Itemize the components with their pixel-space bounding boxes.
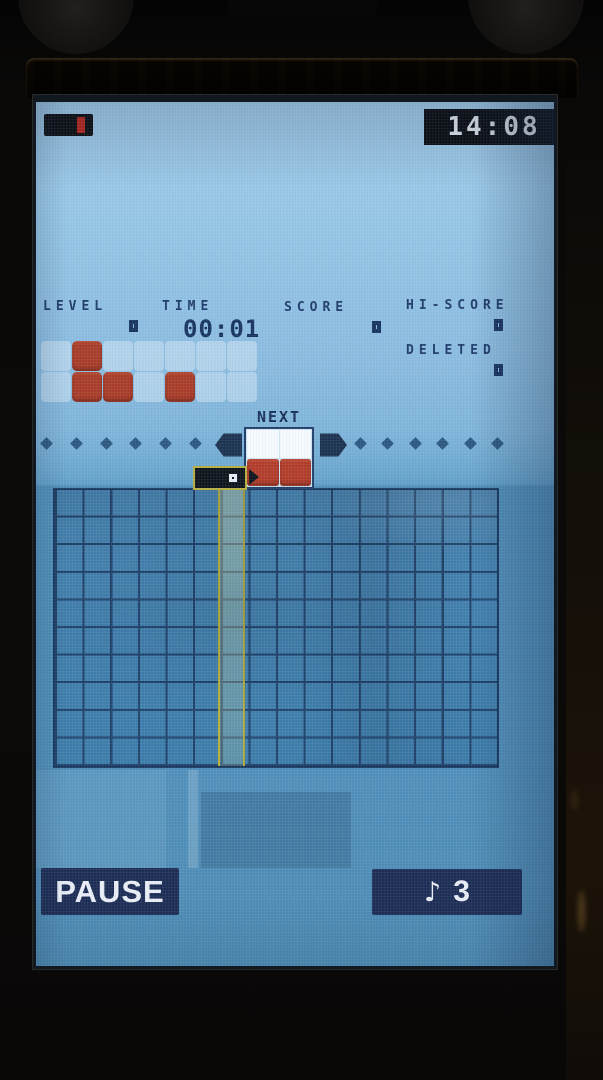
music-button[interactable]: ♪ 3 [372,869,522,915]
next-block-empty [247,430,279,458]
pattern-block-red [72,372,102,402]
device-top-bump-left [18,0,134,54]
hud-time-label: TIME [162,299,213,314]
timeline-arrow-right-icon [320,432,347,458]
photo-frame: 14:08 LEVEL TIME SCORE HI-SCORE DELETED … [0,0,603,1080]
hud-deleted-value: 0 [494,364,503,376]
piece-block-solid [195,468,220,488]
pattern-block-empty [134,372,164,402]
next-block-red [280,459,312,487]
timeline-diamond-icon [491,437,504,450]
hud-score-value: 0 [372,321,381,333]
pattern-block-empty [196,372,226,402]
pattern-block-empty [41,372,71,402]
column-highlight [218,490,245,766]
device-top-notch [228,0,378,16]
pattern-block-red [103,372,133,402]
music-level-value: 3 [453,875,470,909]
timeline-left [42,437,200,449]
field-glare [55,490,497,766]
hud-level-value: 0 [129,320,138,332]
hud-score-label: SCORE [284,300,348,315]
device-side-sheen [566,160,603,1080]
pattern-block-empty [227,341,257,371]
pattern-block-empty [196,341,226,371]
pattern-block-empty [165,341,195,371]
falling-piece [193,466,247,490]
timeline-diamond-icon [354,437,367,450]
timeline-diamond-icon [100,437,113,450]
battery-low-icon [44,114,93,136]
special-block-icon [229,474,237,482]
bezel-glint [578,890,585,932]
timeline-diamond-icon [70,437,83,450]
screen-glare [201,792,351,868]
level-pattern [41,341,257,402]
timeline-diamond-icon [189,437,202,450]
device-bezel [26,58,578,98]
screen-glare [36,770,166,868]
hud-time-value: 00:01 [183,315,260,343]
hud-level-label: LEVEL [43,299,107,314]
timeline-diamond-icon [382,437,395,450]
screen-glare [188,770,198,868]
timeline-right [356,437,502,449]
pattern-block-empty [103,341,133,371]
bezel-glint [572,790,577,810]
timeline-diamond-icon [436,437,449,450]
music-note-icon: ♪ [424,877,441,908]
device-top-bump-right [468,0,584,54]
pattern-block-red [165,372,195,402]
pause-button[interactable]: PAUSE [41,868,179,915]
status-clock: 14:08 [424,109,557,145]
hud-hiscore-value: 0 [494,319,503,331]
battery-level-bar [77,117,85,133]
timeline-diamond-icon [159,437,172,450]
next-block-empty [280,430,312,458]
pattern-block-empty [227,372,257,402]
timeline-diamond-icon [40,437,53,450]
timeline-diamond-icon [409,437,422,450]
pattern-block-empty [134,341,164,371]
pattern-block-red [72,341,102,371]
timeline-diamond-icon [130,437,143,450]
hud-deleted-label: DELETED [406,343,496,358]
pattern-block-empty [41,341,71,371]
timeline-diamond-icon [464,437,477,450]
drop-direction-icon [249,469,259,485]
game-screen: 14:08 LEVEL TIME SCORE HI-SCORE DELETED … [33,95,557,969]
hud-hiscore-label: HI-SCORE [406,298,509,313]
timeline-arrow-left-icon [215,432,242,458]
piece-block-special [220,468,245,488]
play-field [53,488,499,768]
next-label: NEXT [236,408,322,426]
